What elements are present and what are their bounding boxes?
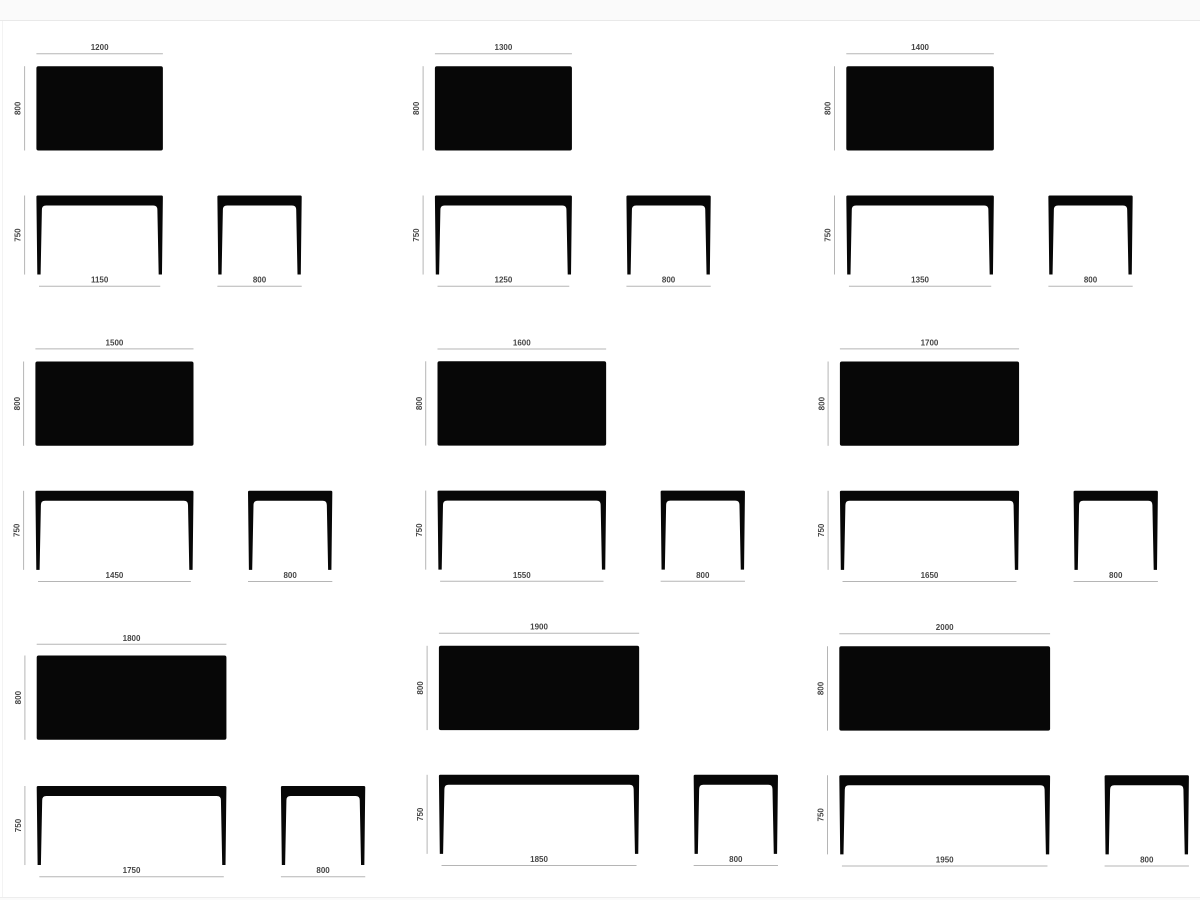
svg-text:800: 800	[817, 681, 826, 695]
svg-text:750: 750	[416, 807, 425, 821]
svg-text:1550: 1550	[513, 571, 531, 580]
svg-text:800: 800	[817, 396, 826, 410]
svg-text:1600: 1600	[513, 339, 531, 348]
svg-text:1300: 1300	[495, 43, 513, 52]
svg-text:750: 750	[412, 228, 421, 242]
svg-text:800: 800	[316, 866, 330, 875]
svg-text:1450: 1450	[106, 571, 124, 580]
svg-text:800: 800	[696, 571, 710, 580]
svg-text:1850: 1850	[530, 855, 548, 864]
svg-text:800: 800	[283, 571, 297, 580]
svg-text:800: 800	[14, 690, 23, 704]
svg-text:1750: 1750	[123, 866, 141, 875]
svg-text:800: 800	[412, 101, 421, 115]
svg-text:750: 750	[817, 523, 826, 537]
svg-text:1500: 1500	[106, 338, 124, 347]
svg-text:1900: 1900	[530, 623, 548, 632]
svg-text:800: 800	[13, 396, 22, 410]
svg-text:800: 800	[1140, 856, 1154, 865]
svg-text:800: 800	[416, 681, 425, 695]
svg-text:750: 750	[13, 523, 22, 537]
svg-text:1200: 1200	[91, 43, 109, 52]
svg-text:1250: 1250	[495, 276, 513, 285]
svg-text:800: 800	[253, 276, 267, 285]
svg-text:1150: 1150	[91, 276, 109, 285]
svg-text:1350: 1350	[911, 276, 929, 285]
svg-text:1400: 1400	[911, 43, 929, 52]
svg-text:750: 750	[817, 808, 826, 822]
svg-text:800: 800	[14, 101, 23, 115]
svg-text:800: 800	[662, 276, 676, 285]
svg-text:2000: 2000	[936, 623, 954, 632]
svg-text:1800: 1800	[123, 634, 141, 643]
svg-text:800: 800	[415, 396, 424, 410]
svg-text:750: 750	[14, 818, 23, 832]
svg-text:1700: 1700	[921, 338, 939, 347]
svg-text:1650: 1650	[921, 571, 939, 580]
svg-text:800: 800	[1109, 571, 1123, 580]
svg-text:800: 800	[729, 855, 743, 864]
svg-text:750: 750	[824, 228, 833, 242]
svg-text:800: 800	[1084, 276, 1098, 285]
svg-text:750: 750	[415, 523, 424, 537]
svg-text:1950: 1950	[936, 856, 954, 865]
svg-text:800: 800	[824, 101, 833, 115]
svg-text:750: 750	[14, 228, 23, 242]
